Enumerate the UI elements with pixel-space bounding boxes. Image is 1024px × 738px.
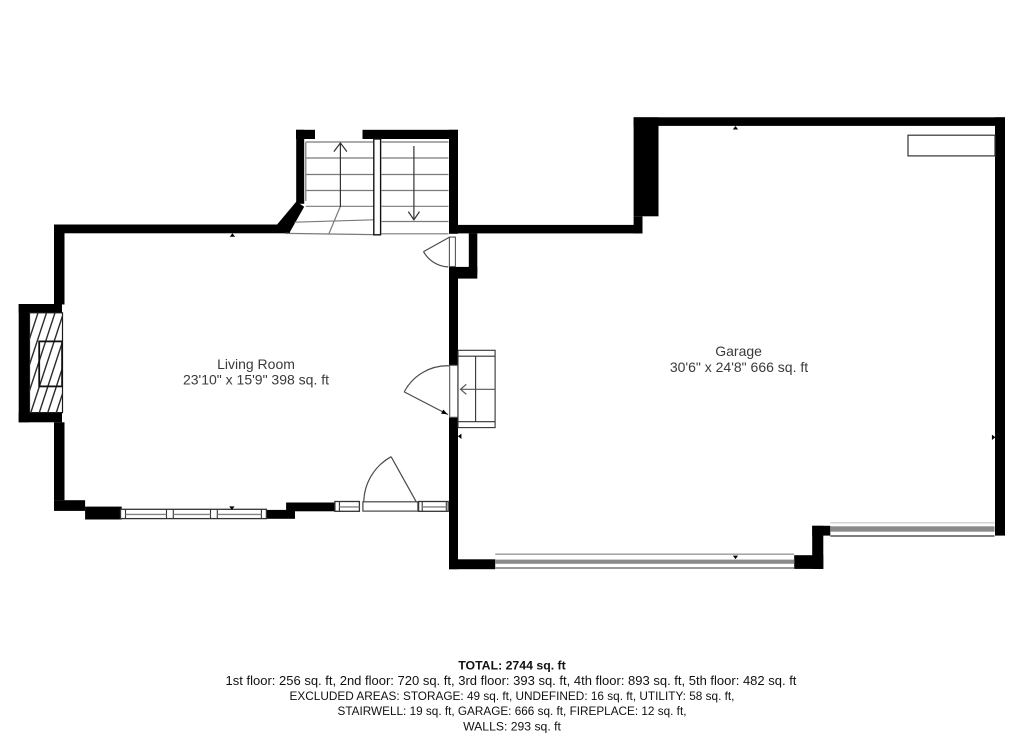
svg-text:23'10" x 15'9" 398 sq. ft: 23'10" x 15'9" 398 sq. ft (183, 372, 329, 388)
svg-text:STAIRWELL: 19 sq. ft, GARAGE:: STAIRWELL: 19 sq. ft, GARAGE: 666 sq. ft… (338, 705, 687, 718)
svg-text:Living Room: Living Room (217, 356, 295, 372)
svg-text:30'6" x 24'8" 666 sq. ft: 30'6" x 24'8" 666 sq. ft (670, 359, 808, 375)
svg-text:1st floor: 256 sq. ft, 2nd flo: 1st floor: 256 sq. ft, 2nd floor: 720 sq… (226, 673, 797, 688)
svg-text:Garage: Garage (715, 343, 762, 359)
svg-text:WALLS: 293 sq. ft: WALLS: 293 sq. ft (463, 719, 561, 733)
svg-text:TOTAL: 2744 sq. ft: TOTAL: 2744 sq. ft (458, 659, 566, 673)
svg-text:EXCLUDED AREAS: STORAGE: 49 sq: EXCLUDED AREAS: STORAGE: 49 sq. ft, UNDE… (290, 689, 735, 703)
